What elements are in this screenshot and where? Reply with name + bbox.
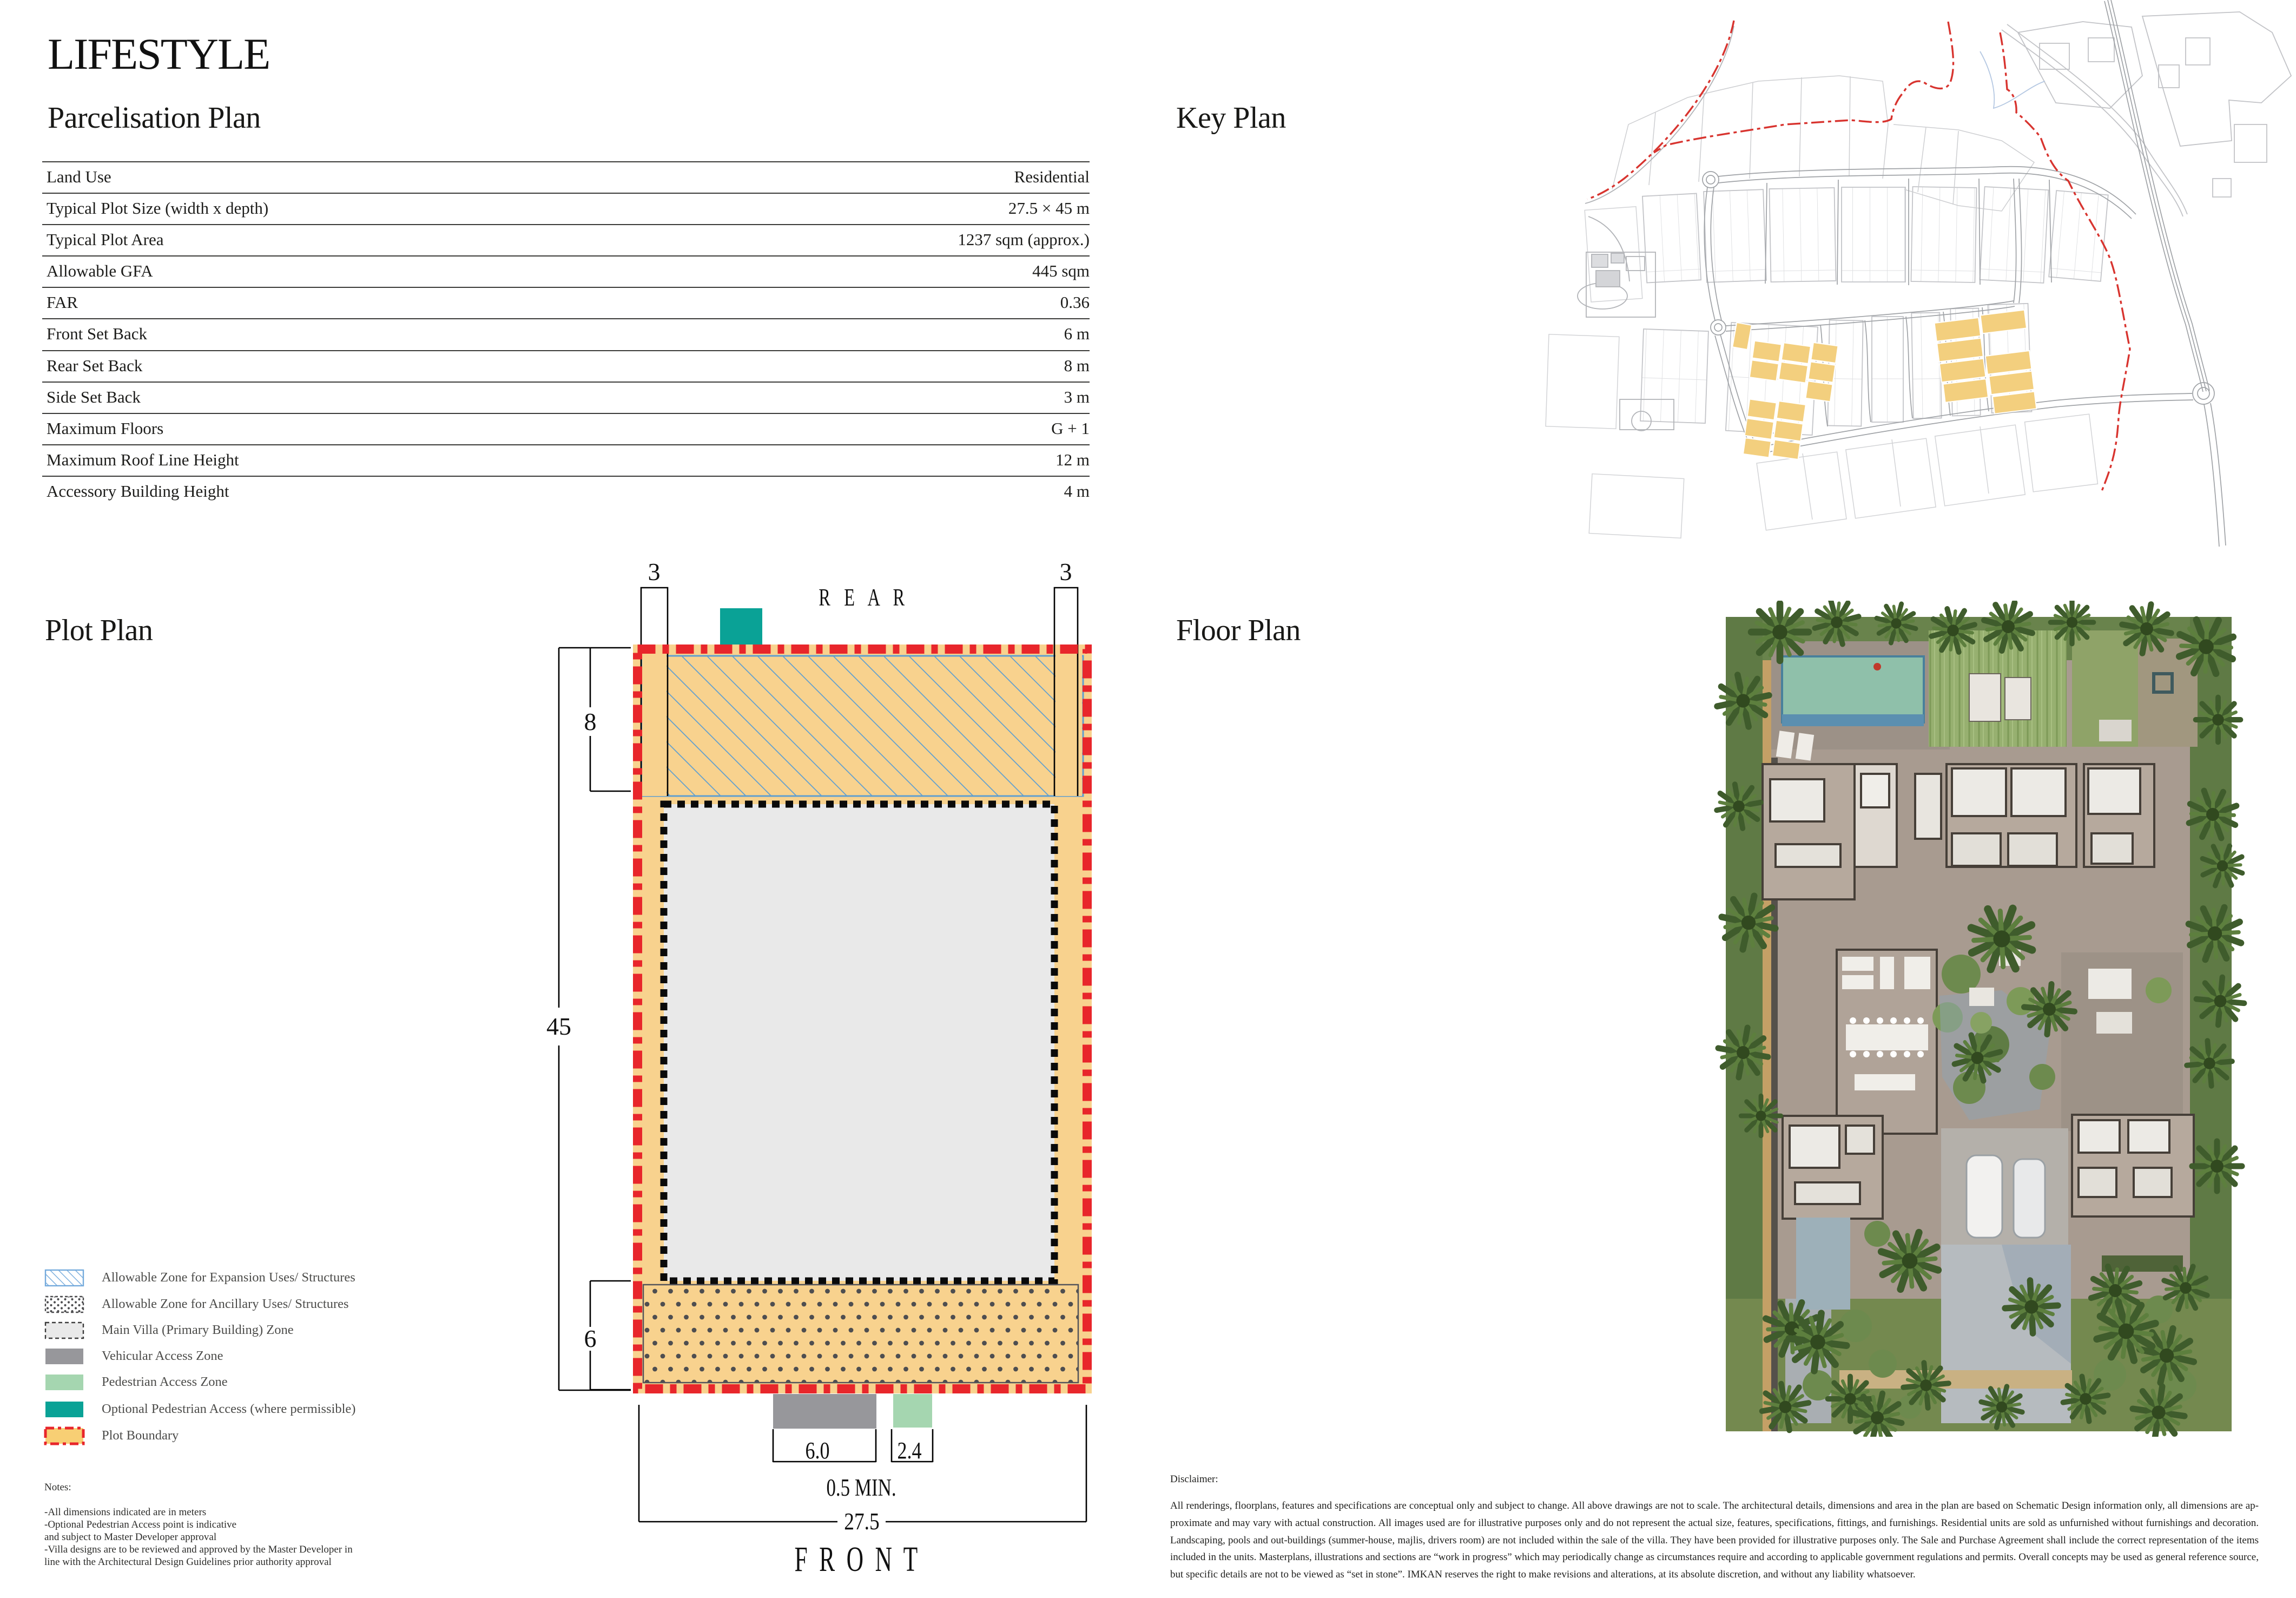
svg-text:R E A R: R E A R <box>819 584 909 611</box>
svg-text:8: 8 <box>584 708 597 735</box>
svg-text:27.5: 27.5 <box>844 1508 879 1534</box>
svg-text:3: 3 <box>1060 558 1072 586</box>
svg-text:6: 6 <box>584 1325 597 1352</box>
svg-text:2.4: 2.4 <box>897 1437 921 1464</box>
svg-text:3: 3 <box>648 558 661 586</box>
svg-text:6.0: 6.0 <box>805 1437 829 1464</box>
svg-text:45: 45 <box>546 1012 571 1040</box>
svg-text:0.5 MIN.: 0.5 MIN. <box>826 1474 896 1501</box>
svg-text:F R O N T: F R O N T <box>794 1540 920 1579</box>
